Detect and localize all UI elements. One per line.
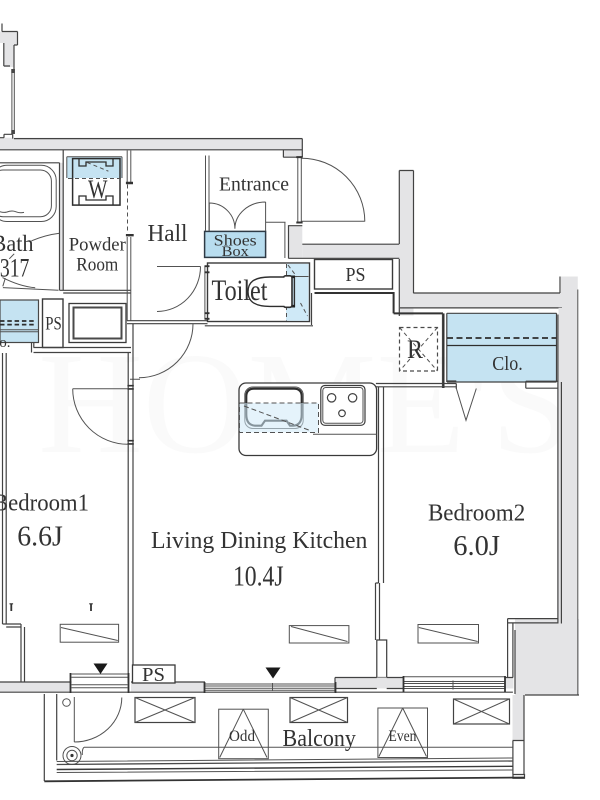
svg-text:Odd: Odd	[229, 728, 255, 745]
svg-text:PS: PS	[45, 314, 62, 335]
svg-text:Clo.: Clo.	[0, 335, 11, 351]
svg-text:Room: Room	[76, 254, 118, 275]
svg-text:Bedroom2: Bedroom2	[428, 501, 525, 527]
svg-text:1317: 1317	[0, 253, 29, 282]
svg-text:R: R	[407, 335, 424, 364]
svg-text:6.6J: 6.6J	[17, 521, 63, 552]
svg-text:10.4J: 10.4J	[233, 561, 284, 592]
svg-text:Balcony: Balcony	[283, 726, 356, 752]
svg-text:PS: PS	[142, 664, 165, 686]
svg-text:Hall: Hall	[148, 220, 188, 247]
svg-text:W: W	[88, 175, 108, 204]
svg-text:Bedroom1: Bedroom1	[0, 491, 89, 517]
svg-text:Toilet: Toilet	[212, 274, 269, 307]
svg-text:Clo.: Clo.	[492, 353, 523, 375]
svg-text:Powder: Powder	[69, 235, 127, 256]
svg-text:PS: PS	[346, 265, 366, 286]
svg-text:Even: Even	[389, 728, 417, 745]
svg-text:6.0J: 6.0J	[453, 530, 500, 562]
svg-text:Box: Box	[222, 244, 250, 260]
svg-text:Living Dining Kitchen: Living Dining Kitchen	[151, 528, 368, 554]
svg-text:Entrance: Entrance	[219, 173, 289, 195]
